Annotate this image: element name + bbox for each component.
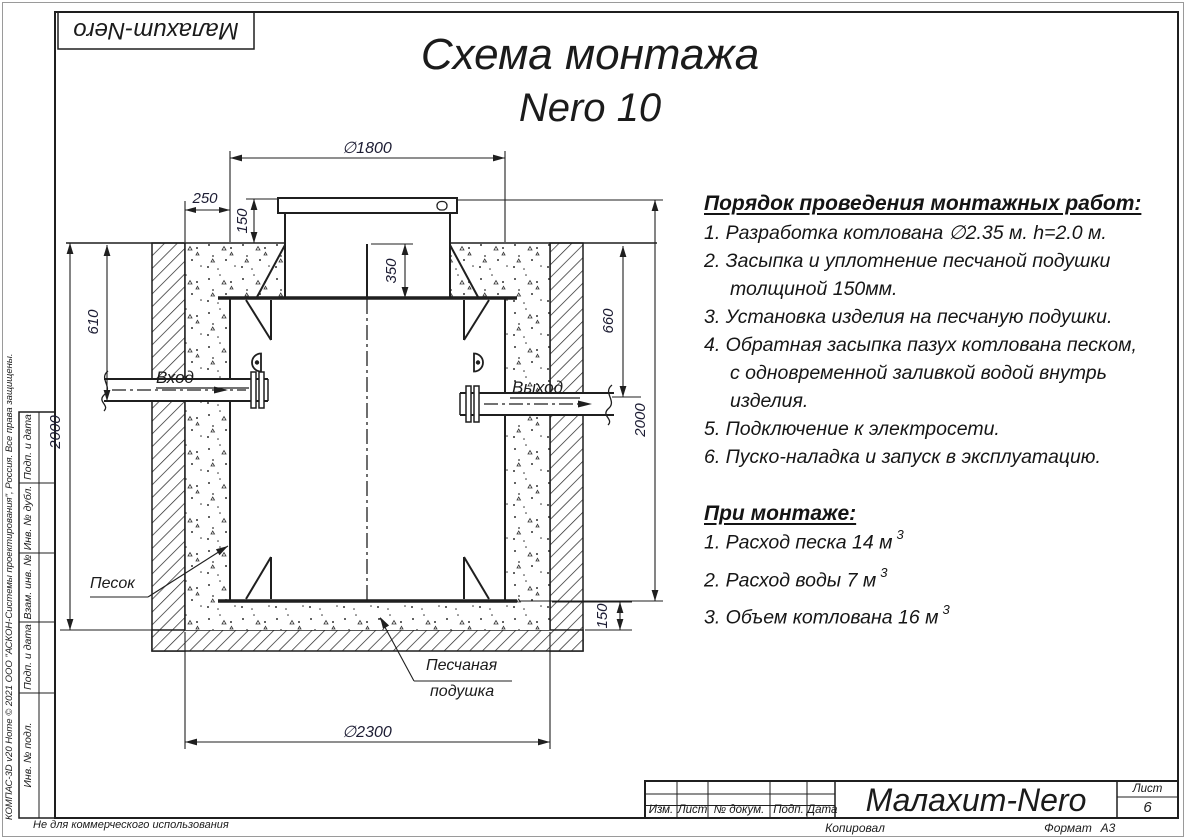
dim-diameter-2300: ∅2300 <box>317 722 417 742</box>
dim-cushion-150: 150 <box>594 586 612 646</box>
mount-item: 2. Расход воды 7 м3 <box>704 567 887 593</box>
step-item: 3. Установка изделия на песчаную подушки… <box>704 303 1152 331</box>
dim-offset-250: 250 <box>175 190 235 207</box>
inlet-label: Вход <box>156 368 194 388</box>
step-item: 2. Засыпка и уплотнение песчаной подушки… <box>704 247 1152 303</box>
title-block-sheet-label: Лист <box>1118 783 1177 795</box>
dim-outlet-660: 660 <box>600 291 618 351</box>
drawing-sheet: Малахит-Nero Схема монтажа Nero 10 Поряд… <box>0 0 1186 839</box>
cushion-label-line2: подушка <box>430 683 494 701</box>
stamp-cell-podp-data-2: Подп. и дата <box>22 607 36 707</box>
step-item: 4. Обратная засыпка пазух котлована песк… <box>704 331 1152 415</box>
stamp-cell-inv-podl: Инв. № подл. <box>22 705 36 805</box>
step-item: 5. Подключение к электросети. <box>704 415 1152 443</box>
mount-item: 1. Расход песка 14 м3 <box>704 529 904 555</box>
dim-diameter-1800: ∅1800 <box>317 138 417 158</box>
company-logo: Малахит-Nero <box>60 15 252 46</box>
title-block-sheet-number: 6 <box>1118 799 1177 816</box>
dim-height-2000-right: 2000 <box>632 390 650 450</box>
sand-label: Песок <box>90 575 135 593</box>
title-block-col-izm: Изм. <box>645 804 677 816</box>
title-block-company: Малахит-Nero <box>838 783 1114 817</box>
step-item: 6. Пуско-наладка и запуск в эксплуатацию… <box>704 443 1152 471</box>
mount-heading: При монтаже: <box>704 502 856 526</box>
kompas-copyright: КОМПАС-3D v20 Home © 2021 ООО "АСКОН-Сис… <box>4 390 16 820</box>
copied-by-label: Копировал <box>795 821 915 835</box>
mount-item-sup: 3 <box>880 565 887 580</box>
outlet-label: Выход <box>512 378 563 398</box>
title-block-col-list: Лист <box>677 804 708 816</box>
dim-lid-150: 150 <box>234 191 252 251</box>
mount-item-text: 3. Объем котлована 16 м <box>704 607 938 629</box>
title-block-col-data: Дата <box>807 804 835 816</box>
mount-item-text: 1. Расход песка 14 м <box>704 532 892 554</box>
cushion-label-line1: Песчаная <box>426 657 497 675</box>
steps-heading: Порядок проведения монтажных работ: <box>704 192 1141 216</box>
title-block-col-docnum: № докум. <box>708 804 770 816</box>
mount-item: 3. Объем котлована 16 м3 <box>704 604 950 630</box>
dim-neck-350: 350 <box>383 241 401 301</box>
mount-item-text: 2. Расход воды 7 м <box>704 570 876 592</box>
step-item: 1. Разработка котлована ∅2.35 м. h=2.0 м… <box>704 219 1152 247</box>
page-subtitle: Nero 10 <box>340 86 840 131</box>
steps-list: 1. Разработка котлована ∅2.35 м. h=2.0 м… <box>704 219 1152 471</box>
mount-item-sup: 3 <box>942 602 949 617</box>
title-block-col-podp: Подп. <box>770 804 807 816</box>
page-title: Схема монтажа <box>340 30 840 80</box>
non-commercial-note: Не для коммерческого использования <box>33 819 229 831</box>
mount-item-sup: 3 <box>896 527 903 542</box>
dim-depth-2000-left: 2000 <box>47 402 65 462</box>
format-value: А3 <box>1090 821 1126 835</box>
dim-inlet-610: 610 <box>85 292 103 352</box>
